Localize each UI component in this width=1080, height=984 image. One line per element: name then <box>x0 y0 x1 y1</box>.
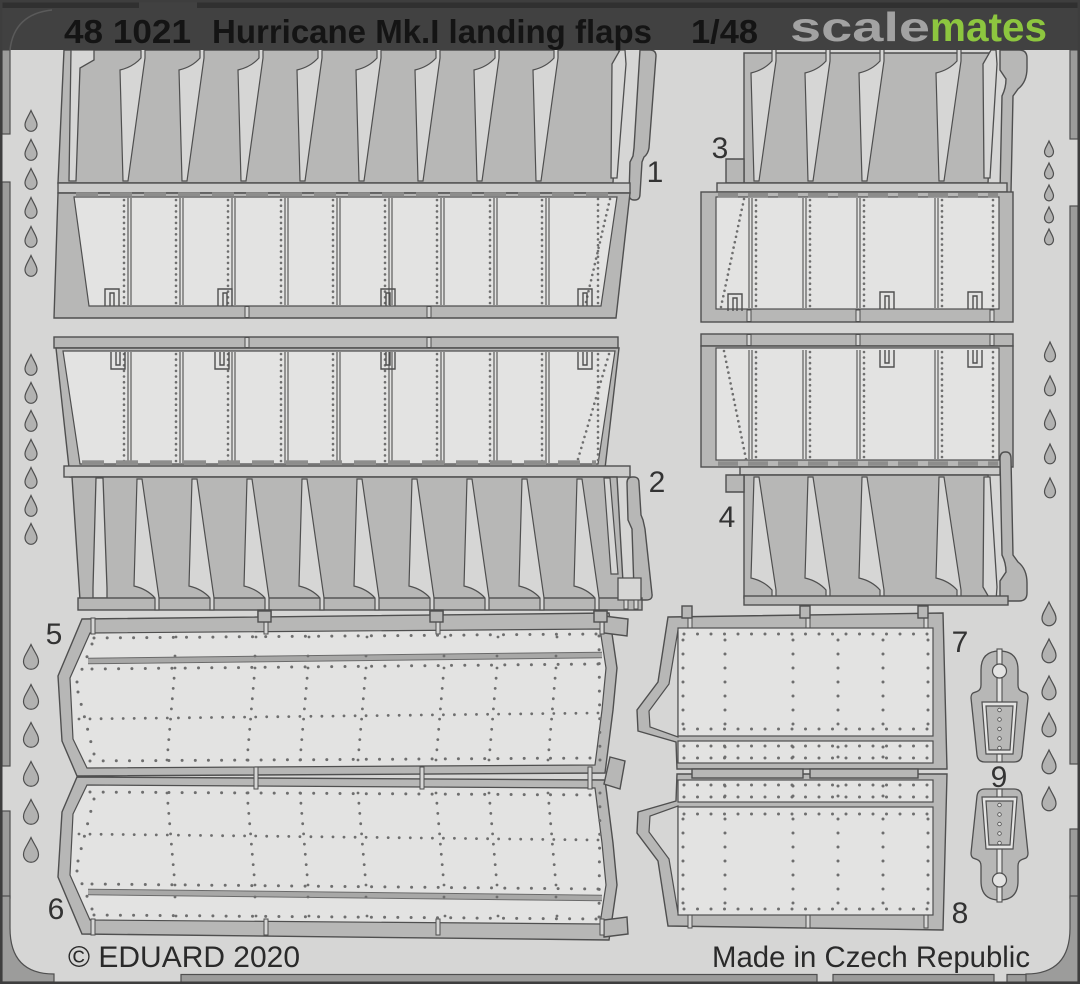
svg-text:1/48: 1/48 <box>691 13 758 50</box>
svg-text:9: 9 <box>991 761 1008 794</box>
svg-text:Made in Czech Republic: Made in Czech Republic <box>712 941 1030 974</box>
svg-text:1: 1 <box>647 156 664 189</box>
svg-text:Hurricane Mk.I landing flaps: Hurricane Mk.I landing flaps <box>212 13 652 50</box>
svg-text:3: 3 <box>712 132 729 165</box>
svg-text:48 1021: 48 1021 <box>64 13 191 50</box>
svg-text:scale: scale <box>790 4 930 50</box>
svg-text:4: 4 <box>719 501 736 534</box>
svg-text:© EDUARD 2020: © EDUARD 2020 <box>68 941 300 974</box>
svg-text:6: 6 <box>48 893 65 926</box>
svg-text:7: 7 <box>952 626 969 659</box>
svg-text:2: 2 <box>649 466 666 499</box>
svg-text:mates: mates <box>930 4 1047 50</box>
svg-text:8: 8 <box>952 897 969 930</box>
svg-text:5: 5 <box>46 618 63 651</box>
